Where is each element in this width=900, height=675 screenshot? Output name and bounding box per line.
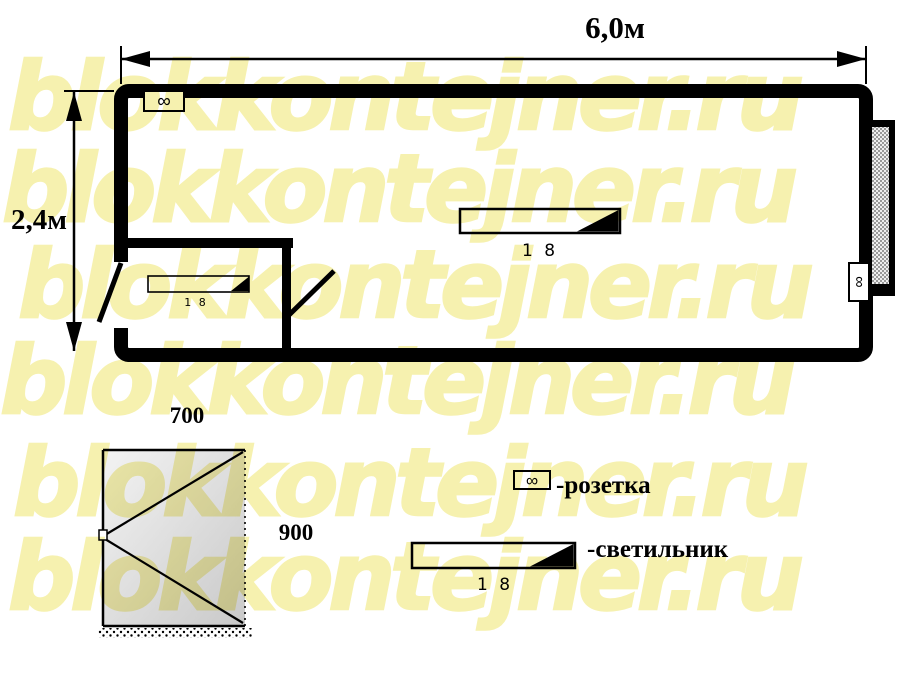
door-handle bbox=[99, 530, 107, 540]
door-detail-drawing bbox=[98, 450, 252, 638]
small-room-light-value: 1 8 bbox=[163, 296, 229, 309]
outlet-symbol-right-wall: ∞ bbox=[848, 262, 870, 302]
window-hatch bbox=[872, 127, 889, 284]
dim-width-arrow-left bbox=[121, 51, 150, 67]
dim-width-label: 6,0м bbox=[568, 10, 662, 46]
door-width-label: 700 bbox=[153, 403, 221, 429]
legend-outlet-symbol: ∞ bbox=[513, 470, 551, 490]
legend-light-value: 1 8 bbox=[452, 575, 538, 595]
partition-wall-vertical bbox=[282, 248, 291, 350]
partition-wall-horizontal bbox=[126, 238, 293, 248]
main-light-value: 1 8 bbox=[498, 241, 582, 261]
floor-plan-page: 6,0м 2,4м 1 8 1 8 700 900 ∞ ∞ ∞ -розетка… bbox=[0, 0, 900, 675]
dim-height-arrow-bottom bbox=[66, 322, 82, 351]
door-height-label: 900 bbox=[266, 520, 326, 546]
legend-light-label: -светильник bbox=[587, 536, 728, 564]
outlet-symbol-top-wall: ∞ bbox=[143, 90, 185, 112]
partition-door-leaf bbox=[288, 271, 334, 316]
plan-drawing bbox=[0, 0, 900, 675]
dim-height-label: 2,4м bbox=[6, 204, 72, 237]
legend-outlet-label: -розетка bbox=[556, 472, 651, 500]
legend-light-symbol bbox=[412, 543, 575, 568]
light-fixture-main bbox=[460, 209, 620, 233]
dim-width-arrow-right bbox=[837, 51, 866, 67]
light-fixture-small-room bbox=[148, 276, 249, 292]
infinity-outlet-icon: ∞ bbox=[851, 276, 867, 287]
infinity-outlet-icon: ∞ bbox=[526, 472, 538, 489]
dim-height-arrow-top bbox=[66, 92, 82, 121]
ground-hatch bbox=[98, 628, 252, 638]
infinity-outlet-icon: ∞ bbox=[157, 92, 171, 111]
